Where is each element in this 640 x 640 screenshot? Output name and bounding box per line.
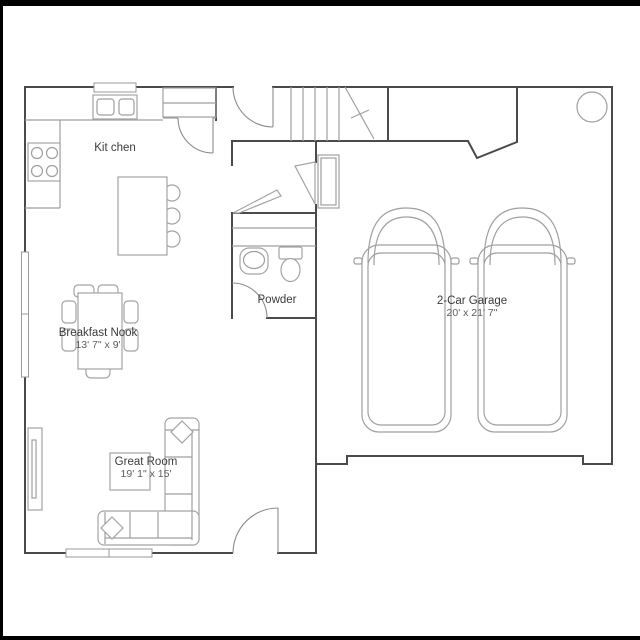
fireplace-symbol — [28, 428, 42, 510]
stove-symbol — [28, 143, 60, 181]
stairs-symbol — [291, 87, 374, 141]
door-arc-icon — [178, 118, 213, 153]
powder-room-fixtures — [232, 228, 316, 282]
garage-label: 2-Car Garage — [437, 295, 507, 307]
water-heater-symbol — [577, 92, 607, 122]
letterbox-left — [0, 0, 3, 640]
garage-entry-door-leaf — [295, 162, 315, 204]
car-symbol — [470, 208, 575, 432]
window-symbol — [22, 314, 29, 377]
window-symbol — [22, 252, 29, 314]
kitchen-label: Kit chen — [94, 142, 136, 154]
great-room-dimensions: 19' 1" x 15' — [121, 468, 172, 480]
door-arc-icon — [233, 87, 273, 127]
chair-icon — [62, 301, 76, 323]
vanity-sink-symbol — [240, 248, 268, 274]
floorplan-screenshot: Kit chen Breakfast Nook 13' 7" x 9' Powd… — [0, 0, 640, 640]
pantry-symbol — [163, 88, 216, 117]
car-mirror-icon — [470, 258, 478, 264]
floorplan-canvas: Kit chen Breakfast Nook 13' 7" x 9' Powd… — [0, 0, 640, 640]
window-symbol — [94, 83, 136, 92]
vanity-counter — [232, 228, 316, 246]
breakfast-nook-label: Breakfast Nook — [59, 327, 138, 339]
car-mirror-icon — [567, 258, 575, 264]
car-mirror-icon — [451, 258, 459, 264]
breakfast-nook-dimensions: 13' 7" x 9' — [75, 339, 120, 351]
window-symbol — [109, 549, 152, 557]
letterbox-bottom — [0, 636, 640, 640]
toilet-symbol — [279, 247, 302, 282]
double-sink-symbol — [93, 95, 137, 119]
interior-walls — [216, 87, 517, 553]
door-arc-icon — [233, 508, 278, 553]
great-room-label: Great Room — [115, 456, 178, 468]
garage-dimensions: 20' x 21' 7" — [447, 307, 498, 319]
window-symbol — [66, 549, 109, 557]
kitchen-island-symbol — [118, 177, 180, 255]
letterbox-top — [0, 0, 640, 6]
powder-label: Powder — [258, 294, 297, 306]
closet-symbol — [318, 155, 339, 208]
car-symbol — [354, 208, 459, 432]
car-mirror-icon — [354, 258, 362, 264]
hall-door-leaf — [233, 190, 281, 213]
chair-icon — [124, 301, 138, 323]
stair-break-tick — [351, 110, 369, 118]
